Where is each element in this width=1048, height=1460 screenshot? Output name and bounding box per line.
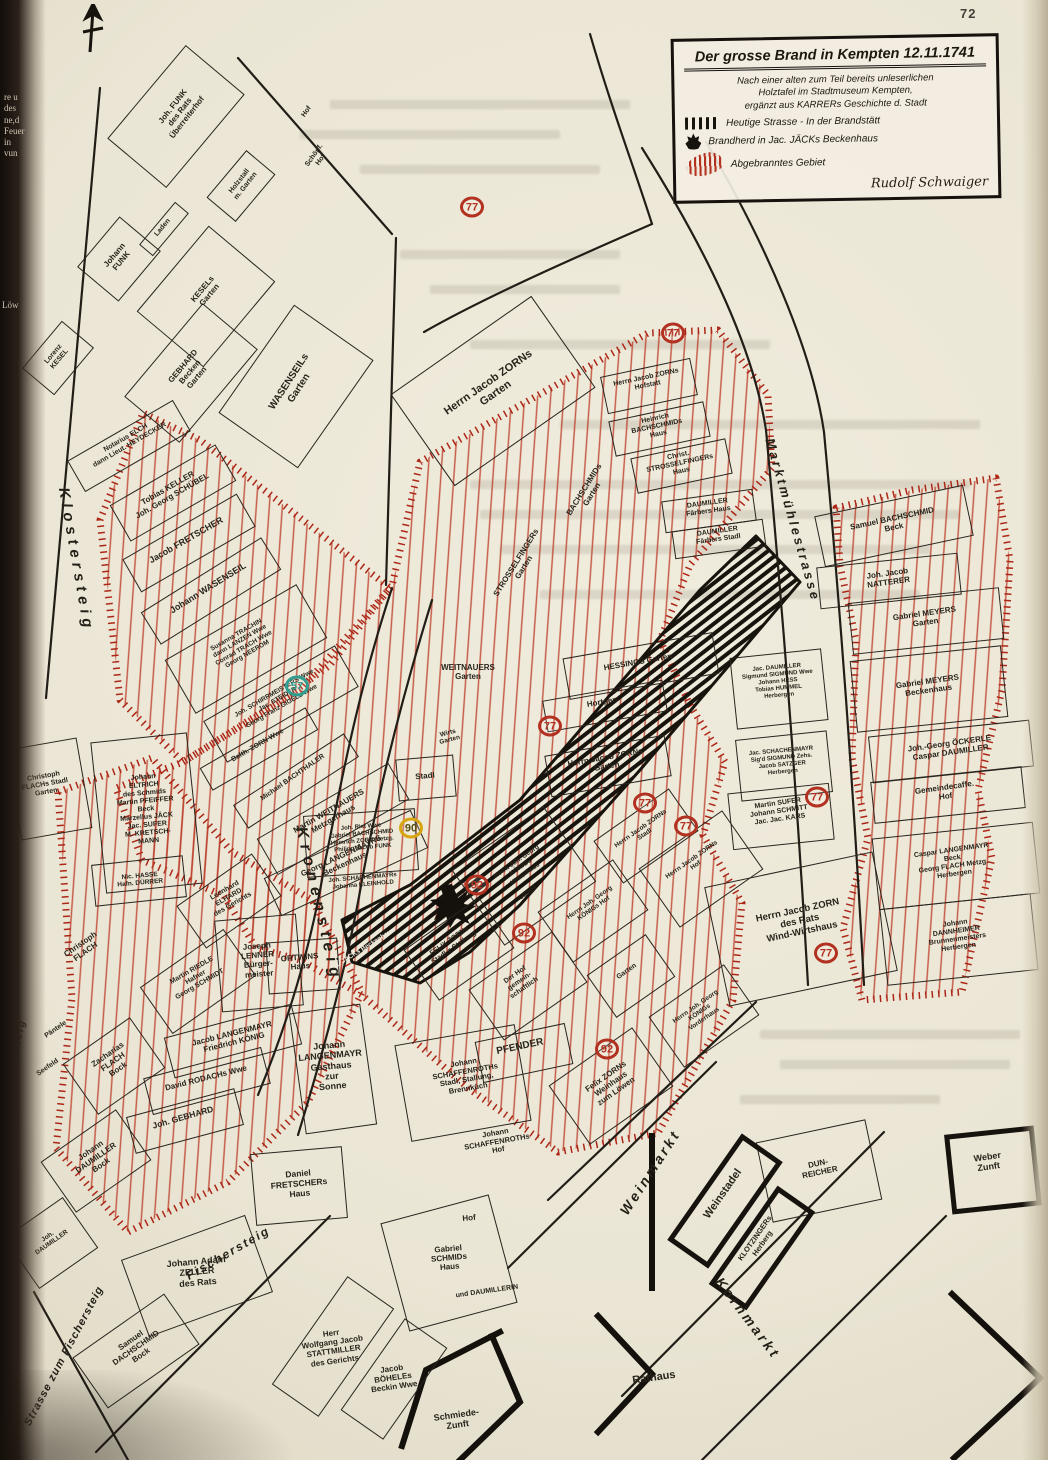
legend-entry-fire-origin: Brandherd in Jac. JÄCKs Beckenhaus: [685, 128, 987, 149]
property-label: Johann LANGENMAYR Gasthaus zur Sonne: [297, 1037, 365, 1094]
circled-number-marker: 92: [465, 875, 489, 896]
burned-area-swatch: [684, 149, 726, 179]
legend-title: Der grosse Brand in Kempten 12.11.1741: [684, 44, 986, 71]
circled-number-marker: 77: [538, 716, 562, 737]
legend-entry-street: Heutige Strasse - In der Brandstätt: [685, 112, 987, 129]
flame-icon: [685, 133, 701, 149]
north-arrow-icon: [76, 4, 110, 56]
property-label: Daniel FRETSCHERs Haus: [269, 1167, 328, 1201]
property-label: Joh. Rist Wwe Gabriel BACHSCHMID Heinric…: [329, 822, 395, 855]
property-label: WEITNAUERS Garten: [441, 663, 495, 681]
page-number: 72: [960, 6, 976, 21]
scanned-map-page: Joh. FUNK des Rats ÜberreiterhofHolzstal…: [0, 0, 1048, 1460]
circled-number-marker: 77: [805, 787, 829, 808]
property-label: Stadl: [415, 771, 435, 782]
legend-entry-label: Brandherd in Jac. JÄCKs Beckenhaus: [708, 133, 878, 147]
circled-number-marker: 77: [460, 197, 484, 218]
legend-entry-label: Abgebranntes Gebiet: [731, 157, 826, 170]
map-drawing: [0, 0, 1048, 1460]
map-legend: Der grosse Brand in Kempten 12.11.1741 N…: [671, 33, 1002, 204]
circled-number-marker: 77: [661, 323, 685, 344]
circled-number-marker: 57: [285, 676, 309, 697]
circled-number-marker: 77: [674, 816, 698, 837]
property-label: Hof: [462, 1213, 476, 1223]
legend-source-note: Nach einer alten zum Teil bereits unlese…: [684, 71, 987, 113]
property-label: Johann ELTRICH des Schmids Martin PFEIFF…: [115, 771, 178, 848]
legend-entry-burned: Abgebranntes Gebiet: [686, 148, 988, 175]
property-label: Joseph LENNER Bürger- meister: [240, 940, 276, 979]
property-label: ORTWINS Haus: [280, 951, 319, 973]
property-label: Jac. DAUMILLER Sigmund SIGMUND Wwe Johan…: [741, 662, 815, 703]
page-edge: [1022, 0, 1048, 1460]
property-label: Weber Zunft: [973, 1150, 1003, 1174]
book-gutter: [0, 0, 46, 1460]
facing-page-text-fragment: Löw: [2, 300, 19, 311]
circled-number-marker: 77: [814, 943, 838, 964]
circled-number-marker: 92: [512, 923, 536, 944]
legend-signature: Rudolf Schwaiger: [686, 174, 988, 194]
property-label: Gabriel SCHMIDs Haus: [430, 1243, 468, 1274]
street-hatch-swatch: [685, 117, 719, 130]
property-label: Jac. SCHACHENMAYR Sig'd SIGMUND Zehs. Ja…: [749, 745, 816, 778]
gutter-shadow: [0, 1370, 420, 1460]
circled-number-marker: 90: [399, 818, 423, 839]
circled-number-marker: 77: [633, 793, 657, 814]
facing-page-text-fragment: re u des ne,d Feuer in vun: [4, 92, 25, 160]
circled-number-marker: 92: [595, 1039, 619, 1060]
legend-entry-label: Heutige Strasse - In der Brandstätt: [726, 115, 880, 129]
